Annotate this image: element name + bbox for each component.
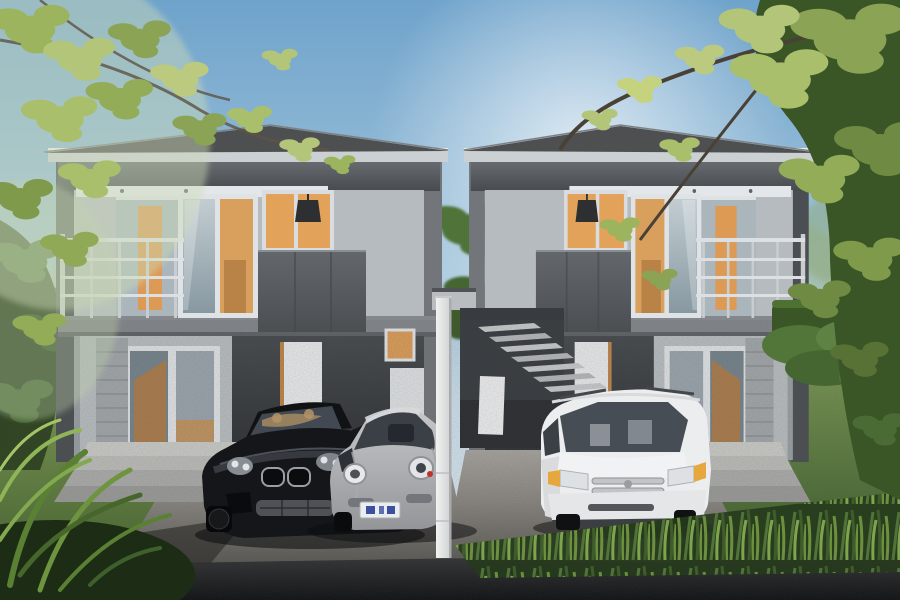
kidney-grille-left <box>262 468 284 486</box>
red-marker-light <box>427 471 433 477</box>
kidney-grille-right <box>288 468 310 486</box>
divider-post <box>435 296 452 558</box>
license-plate <box>360 502 400 518</box>
windshield <box>560 402 688 452</box>
architectural-render-scene <box>0 0 900 600</box>
